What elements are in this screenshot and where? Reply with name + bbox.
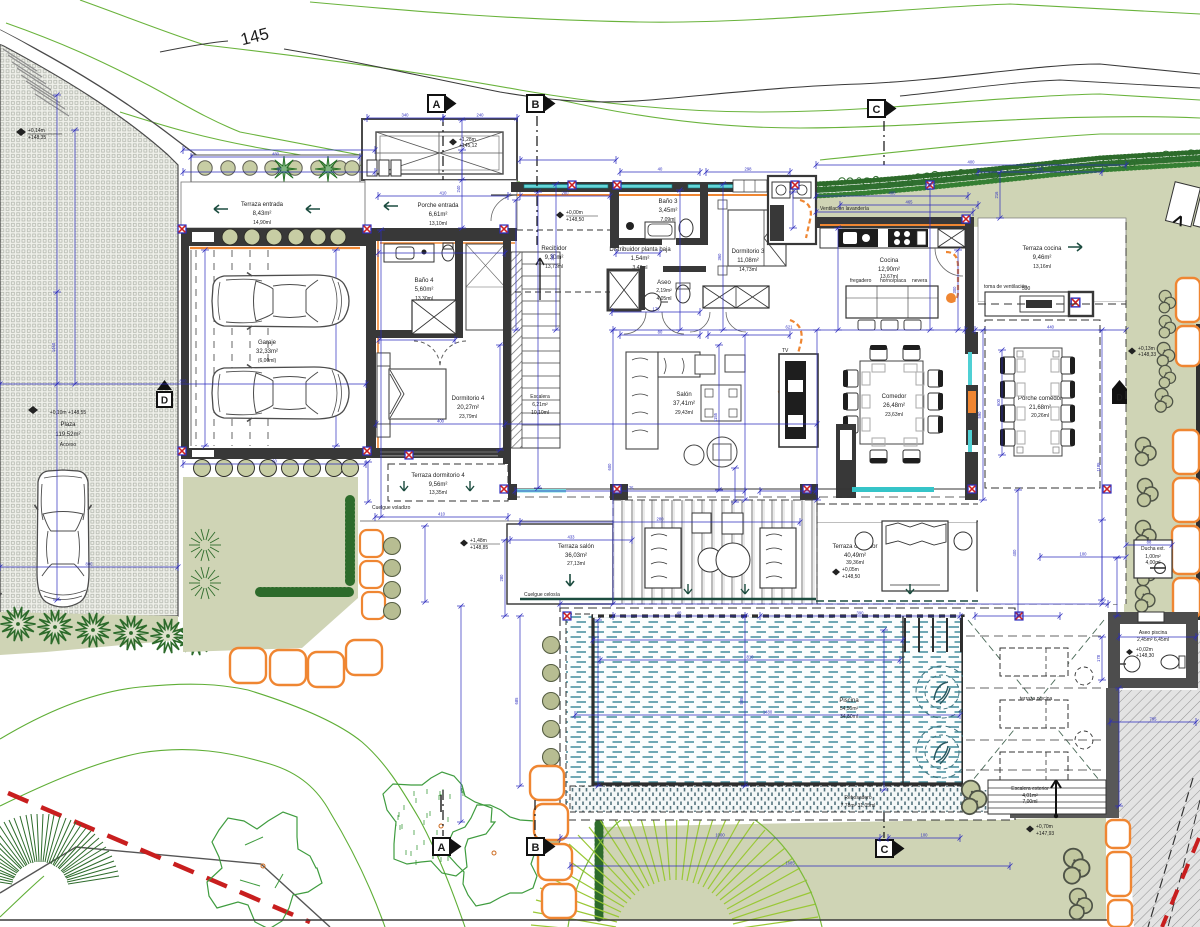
- svg-text:100: 100: [1080, 552, 1088, 557]
- svg-text:29,43ml: 29,43ml: [675, 410, 693, 416]
- svg-text:100: 100: [921, 833, 929, 838]
- svg-text:Ducha ext.: Ducha ext.: [1141, 546, 1165, 552]
- svg-text:Terraza dormitorio 4: Terraza dormitorio 4: [411, 473, 465, 479]
- svg-text:Terraza cocina: Terraza cocina: [1022, 246, 1062, 252]
- svg-text:4,05ml: 4,05ml: [656, 296, 671, 302]
- svg-text:6,61m²: 6,61m²: [429, 212, 448, 218]
- svg-text:Baño 3: Baño 3: [658, 199, 678, 205]
- svg-text:8,43m²: 8,43m²: [253, 211, 272, 217]
- svg-text:600: 600: [996, 398, 1001, 406]
- svg-text:240: 240: [477, 113, 485, 118]
- svg-text:40: 40: [677, 611, 682, 616]
- svg-text:Terraza entrada: Terraza entrada: [241, 202, 284, 208]
- svg-text:23,79ml: 23,79ml: [459, 414, 477, 420]
- svg-text:horno/placa: horno/placa: [880, 278, 906, 284]
- svg-text:6,21m²: 6,21m²: [532, 402, 548, 408]
- svg-text:440: 440: [1047, 325, 1055, 330]
- svg-text:Escalera exterior: Escalera exterior: [1011, 786, 1049, 792]
- svg-text:Recibidor: Recibidor: [541, 246, 566, 252]
- svg-text:7,78m² 31,05ml: 7,78m² 31,05ml: [841, 803, 876, 809]
- svg-text:12,90m²: 12,90m²: [878, 267, 900, 273]
- svg-text:360: 360: [717, 253, 722, 261]
- svg-text:621: 621: [786, 325, 794, 330]
- svg-text:13,16ml: 13,16ml: [1033, 264, 1051, 270]
- svg-text:280: 280: [499, 574, 504, 582]
- svg-text:800: 800: [180, 379, 188, 384]
- svg-text:1460: 1460: [51, 342, 56, 352]
- svg-text:54,50m²: 54,50m²: [840, 706, 859, 712]
- svg-text:585: 585: [739, 697, 744, 705]
- svg-text:400: 400: [968, 160, 976, 165]
- svg-text:+147,93: +147,93: [1036, 831, 1054, 837]
- svg-text:+148,35: +148,35: [28, 135, 46, 141]
- svg-text:Plaza: Plaza: [60, 422, 76, 428]
- svg-text:685: 685: [514, 697, 519, 705]
- svg-text:1480: 1480: [763, 710, 773, 715]
- svg-text:+148,50: +148,50: [842, 574, 860, 580]
- svg-text:nevera: nevera: [912, 278, 928, 284]
- svg-text:+0,05m: +0,05m: [842, 567, 859, 573]
- svg-text:13,73ml: 13,73ml: [545, 264, 563, 270]
- svg-text:175: 175: [627, 486, 635, 491]
- svg-text:+1,48m: +1,48m: [470, 538, 487, 544]
- svg-text:Salón: Salón: [676, 392, 691, 398]
- svg-text:400: 400: [889, 191, 897, 196]
- svg-text:433: 433: [568, 535, 576, 540]
- svg-text:Porche entrada: Porche entrada: [417, 203, 459, 209]
- svg-text:1685: 1685: [785, 861, 795, 866]
- svg-text:21,68m²: 21,68m²: [1029, 405, 1051, 411]
- svg-text:410: 410: [440, 191, 448, 196]
- svg-text:440: 440: [1037, 167, 1045, 172]
- svg-text:39,36ml: 39,36ml: [846, 560, 864, 566]
- svg-text:Baño 4: Baño 4: [414, 278, 434, 284]
- svg-text:410: 410: [438, 512, 446, 517]
- svg-text:Aseo: Aseo: [657, 280, 671, 286]
- svg-text:Garaje: Garaje: [258, 340, 277, 346]
- svg-text:26,48m²: 26,48m²: [883, 403, 905, 409]
- svg-text:1185: 1185: [1096, 462, 1101, 472]
- svg-text:178: 178: [1096, 654, 1101, 662]
- svg-text:60: 60: [272, 459, 277, 464]
- svg-text:36,03m²: 36,03m²: [565, 553, 587, 559]
- svg-text:+148,30: +148,30: [1136, 653, 1154, 659]
- svg-text:Piscina: Piscina: [839, 698, 859, 704]
- svg-text:390: 390: [857, 611, 865, 616]
- svg-text:TV: TV: [782, 348, 789, 354]
- svg-text:7,00ml: 7,00ml: [1022, 799, 1037, 805]
- svg-text:Cuelgue celosía: Cuelgue celosía: [524, 592, 560, 598]
- svg-text:Porche comedor: Porche comedor: [1018, 396, 1062, 402]
- svg-text:+0,10m +148,55: +0,10m +148,55: [50, 410, 87, 416]
- svg-text:119,52m²: 119,52m²: [56, 432, 81, 438]
- svg-text:795: 795: [1150, 717, 1158, 722]
- svg-text:2,19m²: 2,19m²: [656, 288, 672, 294]
- svg-text:5,60m²: 5,60m²: [415, 287, 434, 293]
- svg-text:9,46m²: 9,46m²: [1033, 255, 1052, 261]
- svg-text:32,33m²: 32,33m²: [256, 349, 278, 355]
- svg-text:B: B: [532, 99, 540, 111]
- svg-text:A: A: [433, 99, 441, 111]
- svg-text:C: C: [881, 844, 889, 856]
- svg-text:Comedor: Comedor: [882, 394, 907, 400]
- svg-text:810: 810: [747, 655, 755, 660]
- svg-text:280: 280: [657, 517, 665, 522]
- svg-text:280: 280: [562, 191, 570, 196]
- svg-text:toma de ventilación: toma de ventilación: [984, 284, 1027, 290]
- svg-text:C: C: [873, 104, 881, 116]
- svg-text:590: 590: [977, 411, 982, 419]
- svg-text:+148,33: +148,33: [1138, 352, 1156, 358]
- svg-text:Rebosadero: Rebosadero: [844, 795, 871, 801]
- svg-text:465: 465: [906, 200, 914, 205]
- svg-text:3,45m²: 3,45m²: [659, 208, 678, 214]
- svg-text:9,56m²: 9,56m²: [429, 482, 448, 488]
- svg-text:400: 400: [437, 419, 445, 424]
- svg-text:B: B: [532, 842, 540, 854]
- svg-text:2,45m² 6,45ml: 2,45m² 6,45ml: [1137, 637, 1169, 643]
- svg-text:10,10ml: 10,10ml: [531, 410, 549, 416]
- svg-text:Escalera: Escalera: [530, 394, 550, 400]
- svg-text:D: D: [1116, 393, 1123, 403]
- svg-text:800: 800: [86, 562, 94, 567]
- svg-text:340: 340: [402, 113, 410, 118]
- svg-text:fregadero: fregadero: [850, 278, 872, 284]
- svg-text:240: 240: [456, 185, 461, 193]
- svg-text:(6,00ml): (6,00ml): [258, 358, 277, 364]
- svg-text:+148,85: +148,85: [470, 545, 488, 551]
- svg-text:+148,50: +148,50: [566, 217, 584, 223]
- svg-text:1155: 1155: [713, 412, 718, 422]
- svg-text:Dormitorio 4: Dormitorio 4: [452, 396, 485, 402]
- svg-text:88: 88: [1147, 540, 1152, 545]
- svg-text:Cocina: Cocina: [880, 258, 899, 264]
- svg-text:40,49m²: 40,49m²: [844, 553, 866, 559]
- svg-text:+0,00m: +0,00m: [566, 210, 583, 216]
- svg-text:+0,70m: +0,70m: [1036, 824, 1053, 830]
- svg-text:13,35ml: 13,35ml: [429, 490, 447, 496]
- svg-text:1,54m²: 1,54m²: [631, 256, 650, 262]
- svg-text:400: 400: [1012, 549, 1017, 557]
- svg-text:40: 40: [658, 167, 663, 172]
- svg-text:298: 298: [745, 167, 753, 172]
- svg-text:Dormitorio 3: Dormitorio 3: [732, 249, 765, 255]
- svg-text:37,41m²: 37,41m²: [673, 401, 695, 407]
- svg-text:13,10ml: 13,10ml: [429, 221, 447, 227]
- svg-text:27,13ml: 27,13ml: [567, 561, 585, 567]
- svg-text:1000: 1000: [715, 833, 725, 838]
- svg-text:11,08m²: 11,08m²: [737, 258, 759, 264]
- svg-text:Ventilación lavandería: Ventilación lavandería: [820, 206, 869, 212]
- svg-text:178: 178: [653, 307, 661, 312]
- svg-text:80: 80: [658, 330, 663, 335]
- svg-text:216: 216: [994, 191, 999, 199]
- svg-text:Cuelgue voladizo: Cuelgue voladizo: [372, 505, 411, 511]
- svg-text:600: 600: [607, 463, 612, 471]
- svg-text:20,27m²: 20,27m²: [457, 405, 479, 411]
- svg-text:14,73ml: 14,73ml: [739, 267, 757, 273]
- svg-text:14,90ml: 14,90ml: [253, 220, 271, 226]
- svg-text:Terraza salón: Terraza salón: [558, 544, 594, 550]
- svg-text:360: 360: [550, 253, 555, 261]
- svg-text:D: D: [161, 396, 168, 407]
- svg-text:60: 60: [277, 167, 282, 172]
- svg-text:23,63ml: 23,63ml: [885, 412, 903, 418]
- svg-text:+0,14m: +0,14m: [28, 128, 45, 134]
- svg-text:Acceso: Acceso: [60, 442, 77, 448]
- svg-text:Aseo piscina: Aseo piscina: [1139, 630, 1168, 636]
- svg-text:480: 480: [272, 152, 280, 157]
- svg-text:A: A: [438, 842, 446, 854]
- svg-text:20,26ml: 20,26ml: [1031, 413, 1049, 419]
- svg-text:300: 300: [952, 286, 957, 294]
